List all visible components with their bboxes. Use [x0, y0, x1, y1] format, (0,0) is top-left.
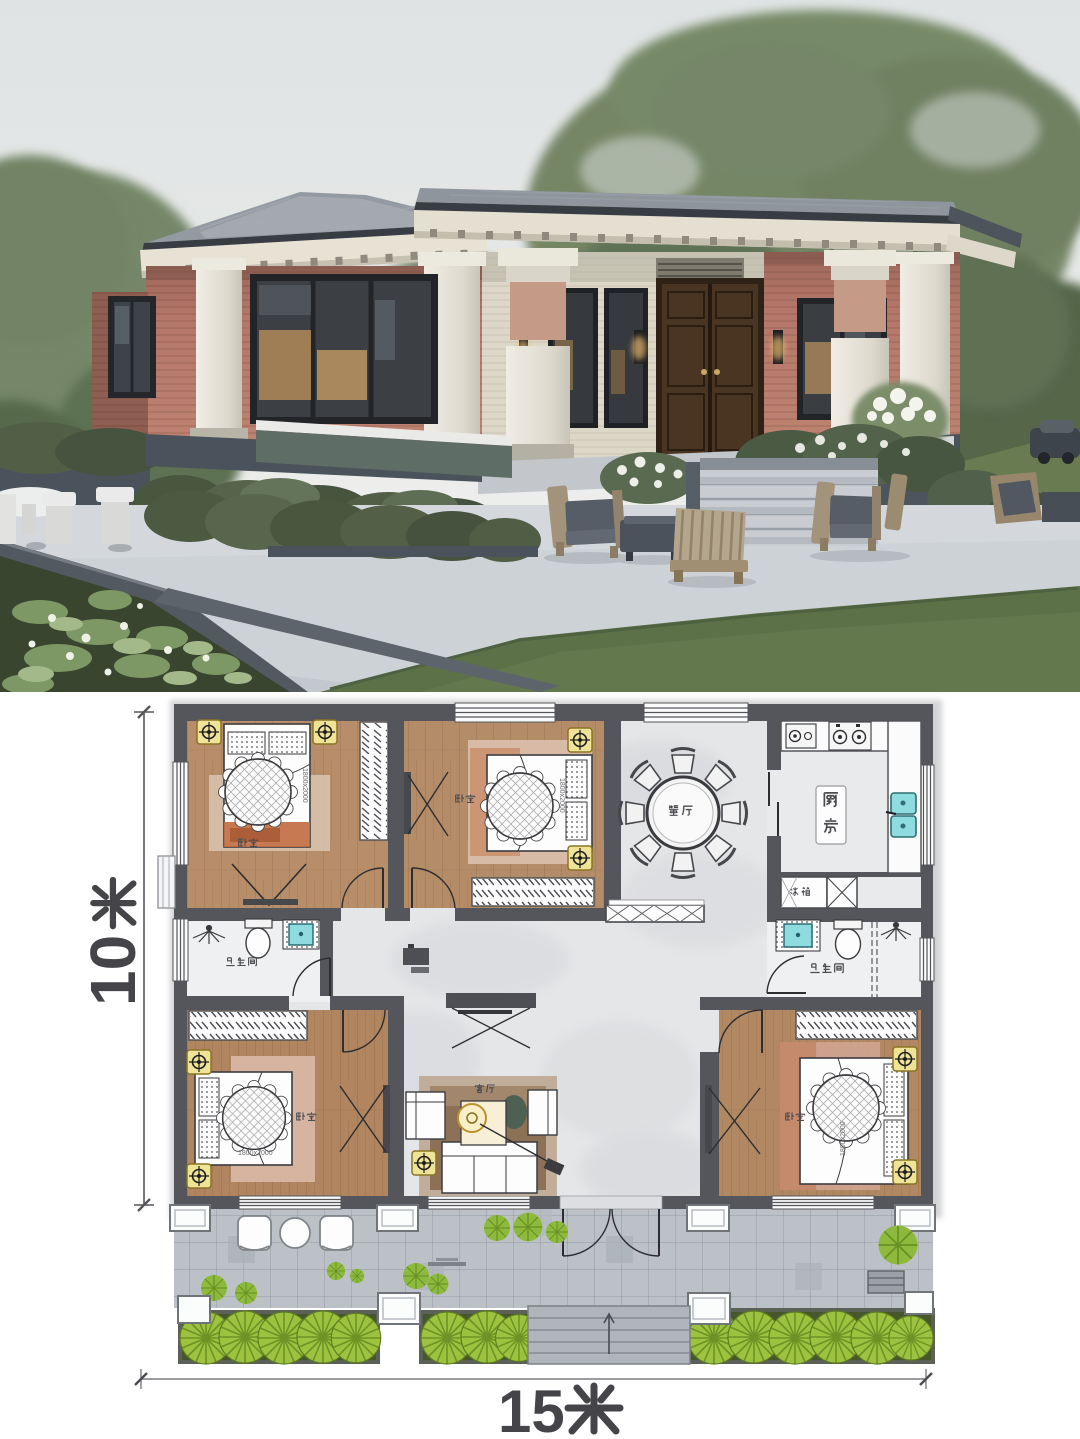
svg-text:1800x2000: 1800x2000: [840, 1121, 847, 1156]
svg-text:15: 15: [498, 1378, 565, 1439]
svg-text:1800x2000: 1800x2000: [558, 778, 565, 813]
svg-text:10: 10: [77, 935, 149, 1006]
svg-text:1800x2000: 1800x2000: [238, 1150, 273, 1157]
svg-text:1800x2000: 1800x2000: [301, 768, 308, 803]
